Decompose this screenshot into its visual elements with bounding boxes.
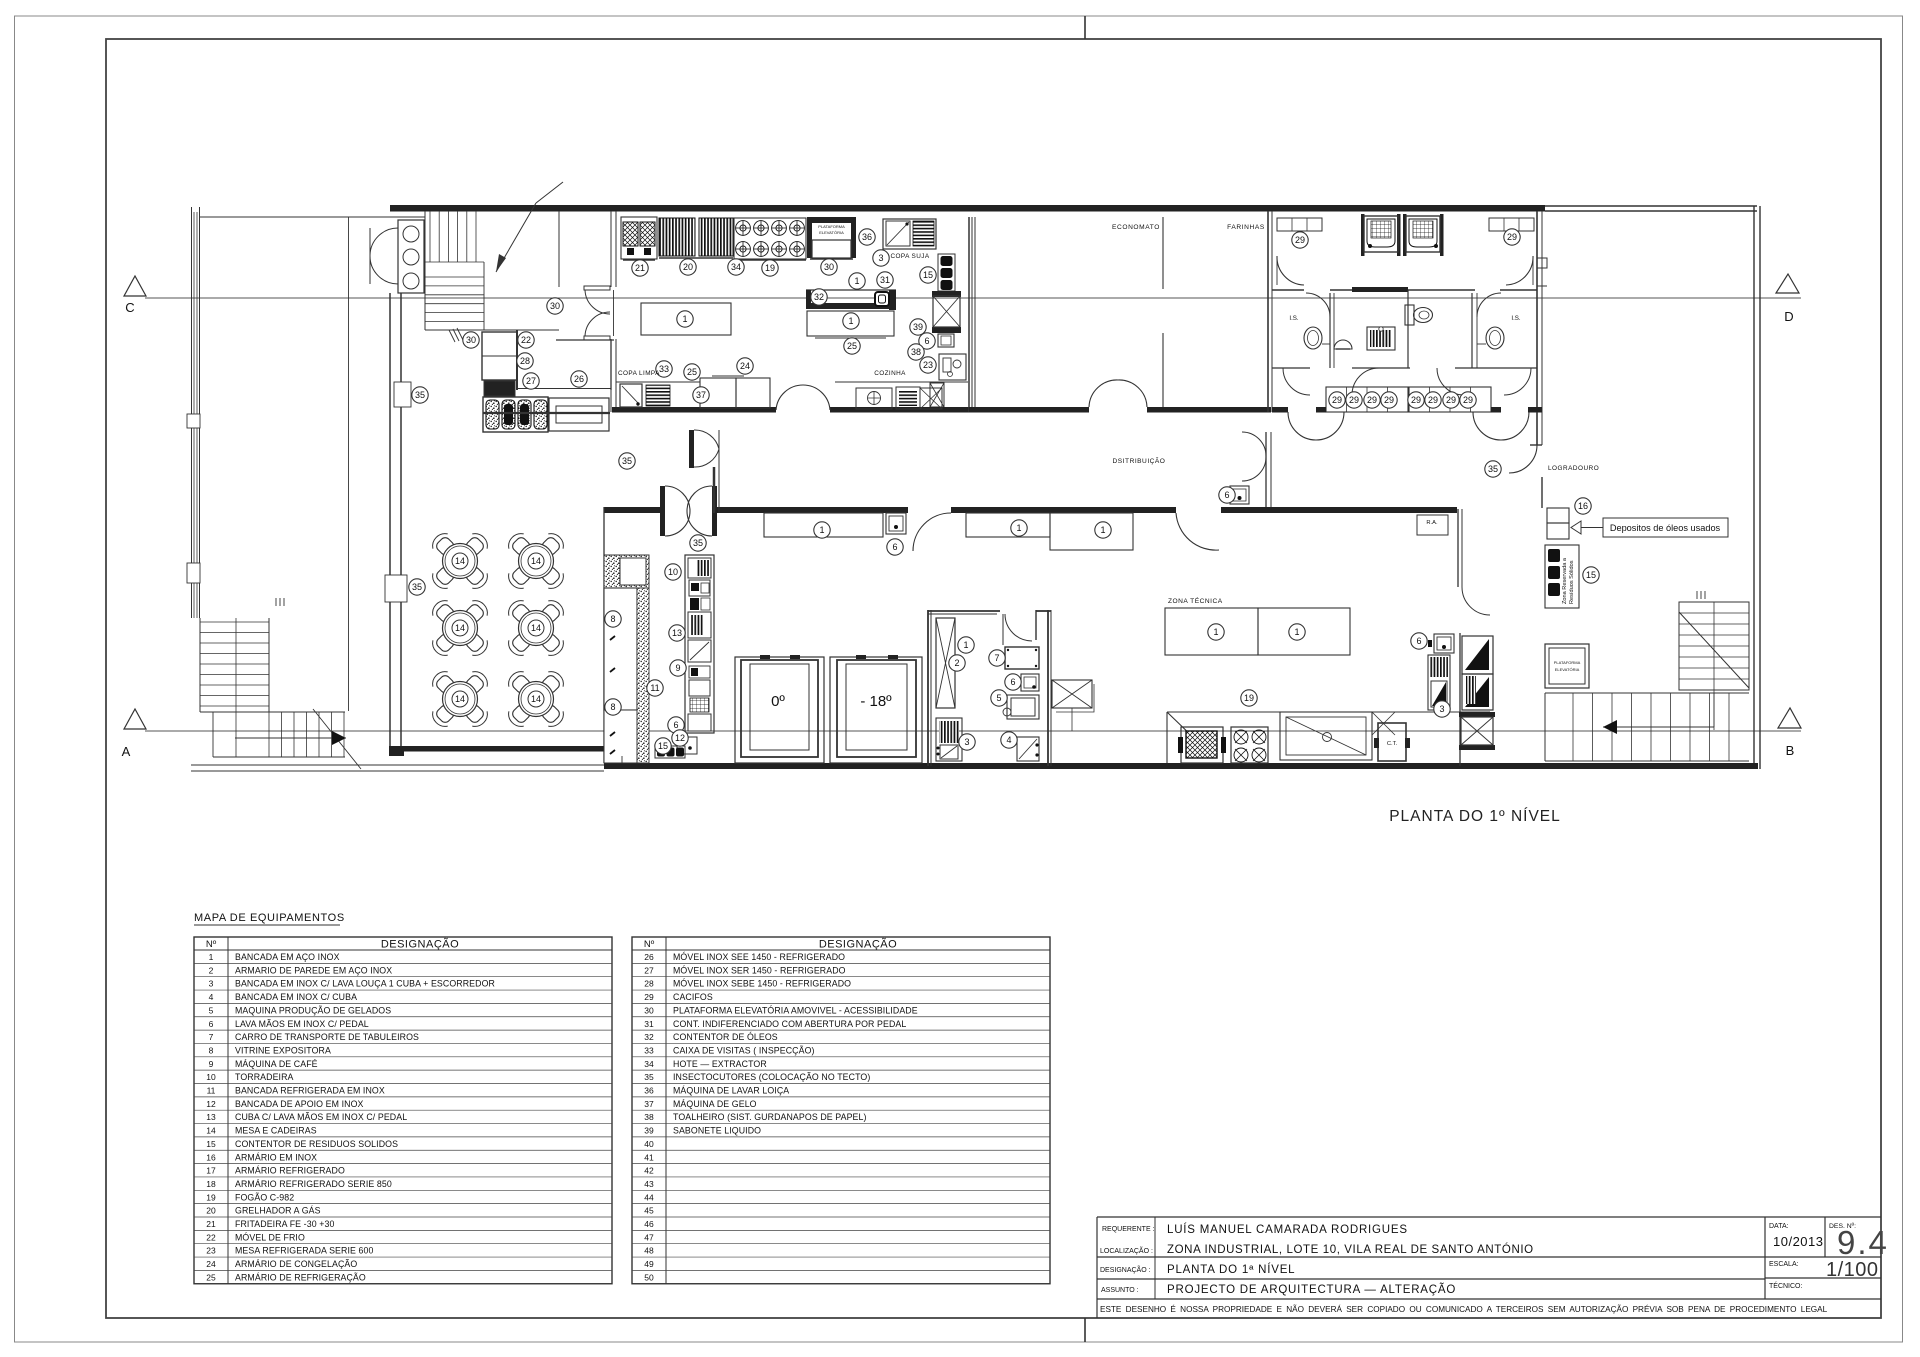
svg-text:35: 35: [622, 456, 632, 466]
svg-text:14: 14: [455, 694, 465, 704]
svg-text:41: 41: [644, 1152, 654, 1162]
svg-text:15: 15: [923, 270, 933, 280]
svg-text:29: 29: [1507, 232, 1517, 242]
svg-text:48: 48: [644, 1246, 654, 1256]
svg-text:CAIXA DE VISITAS ( INSPECÇÃO): CAIXA DE VISITAS ( INSPECÇÃO): [673, 1045, 815, 1055]
svg-text:PLATAFORMA ELEVATÓRIA AMOVIVEL: PLATAFORMA ELEVATÓRIA AMOVIVEL - ACESSIB…: [673, 1005, 918, 1015]
svg-text:1: 1: [1016, 523, 1021, 533]
svg-text:30: 30: [644, 1005, 654, 1015]
svg-text:29: 29: [1384, 395, 1394, 405]
svg-text:14: 14: [531, 694, 541, 704]
svg-text:MÓVEL INOX SER 1450 - REFRIGER: MÓVEL INOX SER 1450 - REFRIGERADO: [673, 965, 846, 975]
svg-text:C.T.: C.T.: [1387, 741, 1398, 747]
svg-text:4: 4: [1006, 735, 1011, 745]
svg-text:49: 49: [644, 1259, 654, 1269]
svg-text:Zona Reservada a: Zona Reservada a: [1562, 557, 1568, 604]
svg-text:29: 29: [1446, 395, 1456, 405]
svg-text:MAPA DE EQUIPAMENTOS: MAPA DE EQUIPAMENTOS: [194, 912, 345, 924]
svg-text:I.S.: I.S.: [1289, 315, 1299, 322]
svg-text:36: 36: [862, 232, 872, 242]
svg-text:3: 3: [209, 979, 214, 989]
svg-text:PLANTA DO 1º NÍVEL: PLANTA DO 1º NÍVEL: [1389, 808, 1561, 825]
svg-text:39: 39: [913, 322, 923, 332]
svg-text:33: 33: [659, 364, 669, 374]
svg-text:CACIFOS: CACIFOS: [673, 992, 713, 1002]
svg-text:14: 14: [531, 556, 541, 566]
svg-text:CONTENTOR DE ÓLEOS: CONTENTOR DE ÓLEOS: [673, 1032, 778, 1042]
svg-text:25: 25: [206, 1272, 216, 1282]
svg-text:MÁQUINA DE LAVAR LOIÇA: MÁQUINA DE LAVAR LOIÇA: [673, 1086, 789, 1096]
svg-text:BANCADA REFRIGERADA EM INOX: BANCADA REFRIGERADA EM INOX: [235, 1086, 385, 1096]
svg-text:MESA E CADEIRAS: MESA E CADEIRAS: [235, 1126, 317, 1136]
svg-text:20: 20: [683, 262, 693, 272]
svg-text:R.A.: R.A.: [1426, 520, 1438, 526]
svg-text:ARMÁRIO DE CONGELAÇÃO: ARMÁRIO DE CONGELAÇÃO: [235, 1259, 357, 1269]
svg-text:BANCADA EM AÇO INOX: BANCADA EM AÇO INOX: [235, 952, 340, 962]
svg-text:ESTE DESENHO É NOSSA PROPRIEDA: ESTE DESENHO É NOSSA PROPRIEDADE E NÃO D…: [1100, 1304, 1828, 1314]
svg-text:35: 35: [1488, 464, 1498, 474]
svg-text:1: 1: [848, 316, 853, 326]
svg-text:PROJECTO DE ARQUITECTURA — ALT: PROJECTO DE ARQUITECTURA — ALTERAÇÃO: [1167, 1283, 1456, 1296]
svg-text:18: 18: [206, 1179, 216, 1189]
svg-text:LOCALIZAÇÃO :: LOCALIZAÇÃO :: [1100, 1246, 1153, 1255]
svg-text:28: 28: [644, 979, 654, 989]
svg-text:43: 43: [644, 1179, 654, 1189]
svg-text:30: 30: [824, 262, 834, 272]
svg-text:Depositos de óleos usados: Depositos de óleos usados: [1610, 523, 1721, 533]
svg-text:5: 5: [996, 693, 1001, 703]
svg-text:ARMÁRIO EM INOX: ARMÁRIO EM INOX: [235, 1152, 317, 1162]
svg-text:MÓVEL DE FRIO: MÓVEL DE FRIO: [235, 1232, 305, 1242]
svg-text:BANCADA EM INOX C/ LAVA LOUÇA: BANCADA EM INOX C/ LAVA LOUÇA 1 CUBA + E…: [235, 979, 495, 989]
svg-text:14: 14: [206, 1126, 216, 1136]
svg-text:ARMÁRIO DE REFRIGERAÇÃO: ARMÁRIO DE REFRIGERAÇÃO: [235, 1272, 366, 1282]
svg-text:47: 47: [644, 1232, 654, 1242]
svg-text:6: 6: [1416, 636, 1421, 646]
svg-text:TORRADEIRA: TORRADEIRA: [235, 1072, 294, 1082]
svg-text:50: 50: [644, 1272, 654, 1282]
svg-text:CONTENTOR DE RESIDUOS SOLIDOS: CONTENTOR DE RESIDUOS SOLIDOS: [235, 1139, 398, 1149]
svg-text:TOALHEIRO (SIST. GURDANAPOS DE: TOALHEIRO (SIST. GURDANAPOS DE PAPEL): [673, 1112, 867, 1122]
svg-text:ARMÁRIO REFRIGERADO: ARMÁRIO REFRIGERADO: [235, 1166, 345, 1176]
svg-text:2: 2: [209, 965, 214, 975]
svg-text:29: 29: [1428, 395, 1438, 405]
svg-text:PLATAFORMA: PLATAFORMA: [818, 224, 845, 229]
svg-text:11: 11: [207, 1086, 216, 1096]
svg-text:40: 40: [644, 1139, 654, 1149]
svg-text:19: 19: [765, 263, 775, 273]
svg-text:30: 30: [550, 301, 560, 311]
svg-text:1: 1: [963, 640, 968, 650]
svg-text:14: 14: [455, 623, 465, 633]
svg-text:1/100: 1/100: [1826, 1259, 1879, 1281]
svg-text:FARINHAS: FARINHAS: [1227, 224, 1265, 231]
svg-text:- 18º: - 18º: [860, 693, 892, 710]
svg-text:6: 6: [1010, 677, 1015, 687]
svg-text:34: 34: [731, 262, 741, 272]
svg-text:1: 1: [209, 952, 214, 962]
svg-text:6: 6: [209, 1019, 214, 1029]
svg-text:ECONOMATO: ECONOMATO: [1112, 224, 1160, 231]
svg-text:8: 8: [610, 614, 615, 624]
svg-text:MÁQUINA DE GELO: MÁQUINA DE GELO: [673, 1099, 757, 1109]
svg-text:27: 27: [526, 376, 536, 386]
svg-text:30: 30: [466, 335, 476, 345]
svg-text:16: 16: [206, 1152, 216, 1162]
svg-text:MÁQUINA DE CAFÉ: MÁQUINA DE CAFÉ: [235, 1059, 318, 1069]
svg-text:ESCALA:: ESCALA:: [1769, 1261, 1799, 1268]
svg-text:14: 14: [455, 556, 465, 566]
svg-text:1: 1: [1294, 627, 1299, 637]
svg-text:13: 13: [672, 628, 682, 638]
svg-text:35: 35: [412, 582, 422, 592]
svg-text:24: 24: [206, 1259, 216, 1269]
svg-text:ELEVATÓRIA: ELEVATÓRIA: [819, 230, 844, 235]
svg-text:34: 34: [644, 1059, 654, 1069]
svg-text:DESIGNAÇÃO: DESIGNAÇÃO: [381, 938, 459, 951]
svg-text:DATA:: DATA:: [1769, 1223, 1789, 1230]
svg-text:46: 46: [644, 1219, 654, 1229]
svg-text:COZINHA: COZINHA: [874, 370, 906, 377]
svg-text:21: 21: [635, 263, 645, 273]
svg-text:DESIGNAÇÃO: DESIGNAÇÃO: [819, 938, 897, 951]
svg-text:ARMÁRIO REFRIGERADO SERIE 850: ARMÁRIO REFRIGERADO SERIE 850: [235, 1179, 392, 1189]
svg-text:1: 1: [854, 276, 859, 286]
svg-text:24: 24: [740, 361, 750, 371]
svg-text:29: 29: [1332, 395, 1342, 405]
svg-text:1: 1: [1213, 627, 1218, 637]
svg-text:23: 23: [206, 1246, 216, 1256]
svg-text:D: D: [1784, 309, 1793, 324]
svg-text:PLANTA DO 1ª NÍVEL: PLANTA DO 1ª NÍVEL: [1167, 1263, 1295, 1276]
svg-text:PLATAFORMA: PLATAFORMA: [1554, 660, 1581, 665]
svg-text:29: 29: [644, 992, 654, 1002]
svg-text:21: 21: [206, 1219, 216, 1229]
svg-text:1: 1: [1100, 525, 1105, 535]
svg-text:11: 11: [650, 683, 659, 693]
svg-text:Resíduos Sólidos: Resíduos Sólidos: [1569, 560, 1575, 604]
svg-text:DSITRIBUIÇÃO: DSITRIBUIÇÃO: [1113, 456, 1166, 465]
svg-text:29: 29: [1349, 395, 1359, 405]
svg-text:29: 29: [1463, 395, 1473, 405]
svg-text:1: 1: [819, 525, 824, 535]
svg-text:35: 35: [693, 538, 703, 548]
svg-text:14: 14: [531, 623, 541, 633]
svg-text:6: 6: [673, 720, 678, 730]
svg-text:28: 28: [520, 356, 530, 366]
svg-text:35: 35: [415, 390, 425, 400]
svg-text:37: 37: [696, 390, 706, 400]
svg-text:I.S.: I.S.: [1511, 315, 1521, 322]
svg-text:39: 39: [644, 1126, 654, 1136]
svg-text:BANCADA DE APOIO EM INOX: BANCADA DE APOIO EM INOX: [235, 1099, 364, 1109]
svg-text:9: 9: [675, 663, 680, 673]
svg-text:19: 19: [206, 1192, 216, 1202]
svg-text:8: 8: [610, 702, 615, 712]
svg-text:CUBA C/ LAVA MÃOS EM INOX C/ P: CUBA C/ LAVA MÃOS EM INOX C/ PEDAL: [235, 1112, 407, 1122]
svg-text:MAQUINA PRODUÇÃO DE GELADOS: MAQUINA PRODUÇÃO DE GELADOS: [235, 1005, 391, 1015]
svg-text:LAVA MÃOS EM INOX C/ PEDAL: LAVA MÃOS EM INOX C/ PEDAL: [235, 1019, 369, 1029]
svg-text:C: C: [125, 300, 134, 315]
svg-text:25: 25: [687, 367, 697, 377]
svg-text:COPA LIMPA: COPA LIMPA: [618, 370, 660, 377]
svg-text:12: 12: [675, 733, 685, 743]
svg-text:17: 17: [206, 1166, 216, 1176]
svg-text:38: 38: [911, 347, 921, 357]
svg-text:GRELHADOR A GÁS: GRELHADOR A GÁS: [235, 1206, 321, 1216]
svg-text:DESIGNAÇÃO :: DESIGNAÇÃO :: [1100, 1265, 1151, 1274]
svg-text:ZONA INDUSTRIAL, LOTE 10, VILA: ZONA INDUSTRIAL, LOTE 10, VILA REAL DE S…: [1167, 1243, 1534, 1256]
svg-text:22: 22: [521, 335, 531, 345]
svg-text:32: 32: [814, 292, 824, 302]
svg-text:3: 3: [964, 737, 969, 747]
svg-text:22: 22: [206, 1232, 216, 1242]
svg-text:CONT. INDIFERENCIADO COM ABERT: CONT. INDIFERENCIADO COM ABERTURA POR PE…: [673, 1019, 906, 1029]
svg-text:7: 7: [994, 653, 999, 663]
svg-text:15: 15: [658, 741, 668, 751]
svg-text:32: 32: [644, 1032, 654, 1042]
svg-text:SABONETE LIQUIDO: SABONETE LIQUIDO: [673, 1126, 761, 1136]
svg-text:29: 29: [1367, 395, 1377, 405]
svg-text:INSECTOCUTORES (COLOCAÇÃO NO T: INSECTOCUTORES (COLOCAÇÃO NO TECTO): [673, 1072, 870, 1082]
svg-text:ASSUNTO :: ASSUNTO :: [1101, 1287, 1139, 1294]
svg-text:1: 1: [682, 314, 687, 324]
svg-text:ARMARIO DE PAREDE EM AÇO INOX: ARMARIO DE PAREDE EM AÇO INOX: [235, 965, 392, 975]
svg-text:33: 33: [644, 1045, 654, 1055]
svg-text:10: 10: [206, 1072, 216, 1082]
svg-text:19: 19: [1244, 693, 1254, 703]
svg-text:36: 36: [644, 1086, 654, 1096]
svg-text:42: 42: [644, 1166, 654, 1176]
svg-text:4: 4: [209, 992, 214, 1002]
svg-text:3: 3: [878, 253, 883, 263]
svg-text:25: 25: [847, 341, 857, 351]
svg-text:MÓVEL INOX SEE 1450 - REFRIGER: MÓVEL INOX SEE 1450 - REFRIGERADO: [673, 952, 845, 962]
svg-text:13: 13: [206, 1112, 216, 1122]
svg-text:8: 8: [209, 1045, 214, 1055]
svg-text:31: 31: [880, 275, 890, 285]
svg-text:TÉCNICO:: TÉCNICO:: [1769, 1281, 1803, 1290]
svg-text:MESA REFRIGERADA SERIE 600: MESA REFRIGERADA SERIE 600: [235, 1246, 374, 1256]
svg-text:Nº: Nº: [206, 939, 217, 950]
svg-text:LOGRADOURO: LOGRADOURO: [1548, 465, 1599, 472]
svg-text:37: 37: [644, 1099, 654, 1109]
svg-text:10: 10: [668, 567, 678, 577]
svg-text:B: B: [1786, 743, 1795, 758]
svg-text:Nº: Nº: [644, 939, 655, 950]
svg-text:10/2013: 10/2013: [1773, 1234, 1824, 1249]
svg-text:29: 29: [1295, 235, 1305, 245]
svg-text:26: 26: [574, 374, 584, 384]
svg-text:BANCADA EM INOX C/ CUBA: BANCADA EM INOX C/ CUBA: [235, 992, 357, 1002]
svg-text:29: 29: [1411, 395, 1421, 405]
svg-text:3: 3: [1439, 704, 1444, 714]
svg-text:20: 20: [206, 1206, 216, 1216]
svg-text:A: A: [122, 744, 131, 759]
svg-text:ELEVATÓRIA: ELEVATÓRIA: [1555, 667, 1580, 672]
svg-text:45: 45: [644, 1206, 654, 1216]
svg-text:FOGÃO C-982: FOGÃO C-982: [235, 1192, 294, 1202]
svg-text:15: 15: [1586, 570, 1596, 580]
svg-text:CARRO DE TRANSPORTE DE TABULEI: CARRO DE TRANSPORTE DE TABULEIROS: [235, 1032, 419, 1042]
svg-text:27: 27: [644, 965, 654, 975]
svg-text:VITRINE EXPOSITORA: VITRINE EXPOSITORA: [235, 1045, 331, 1055]
svg-text:HOTE — EXTRACTOR: HOTE — EXTRACTOR: [673, 1059, 767, 1069]
svg-text:9: 9: [209, 1059, 214, 1069]
svg-text:23: 23: [923, 360, 933, 370]
svg-text:31: 31: [644, 1019, 654, 1029]
svg-text:COPA SUJA: COPA SUJA: [891, 253, 930, 260]
svg-text:9.4: 9.4: [1837, 1224, 1889, 1261]
svg-text:16: 16: [1578, 501, 1588, 511]
svg-text:26: 26: [644, 952, 654, 962]
svg-text:12: 12: [206, 1099, 216, 1109]
svg-text:6: 6: [1224, 490, 1229, 500]
svg-text:38: 38: [644, 1112, 654, 1122]
svg-text:15: 15: [206, 1139, 216, 1149]
svg-text:LUÍS MANUEL CAMARADA RODRIGUES: LUÍS MANUEL CAMARADA RODRIGUES: [1167, 1223, 1408, 1236]
svg-text:7: 7: [209, 1032, 214, 1042]
svg-text:REQUERENTE :: REQUERENTE :: [1102, 1226, 1155, 1233]
svg-text:44: 44: [644, 1192, 654, 1202]
svg-text:2: 2: [954, 658, 959, 668]
svg-text:35: 35: [644, 1072, 654, 1082]
svg-text:ZONA TÉCNICA: ZONA TÉCNICA: [1168, 596, 1223, 605]
svg-text:0º: 0º: [771, 693, 785, 710]
svg-text:5: 5: [209, 1005, 214, 1015]
svg-text:FRITADEIRA FE -30 +30: FRITADEIRA FE -30 +30: [235, 1219, 334, 1229]
svg-text:6: 6: [892, 542, 897, 552]
svg-text:MÓVEL INOX SEBE 1450 - REFRIGE: MÓVEL INOX SEBE 1450 - REFRIGERADO: [673, 979, 851, 989]
svg-text:6: 6: [924, 336, 929, 346]
